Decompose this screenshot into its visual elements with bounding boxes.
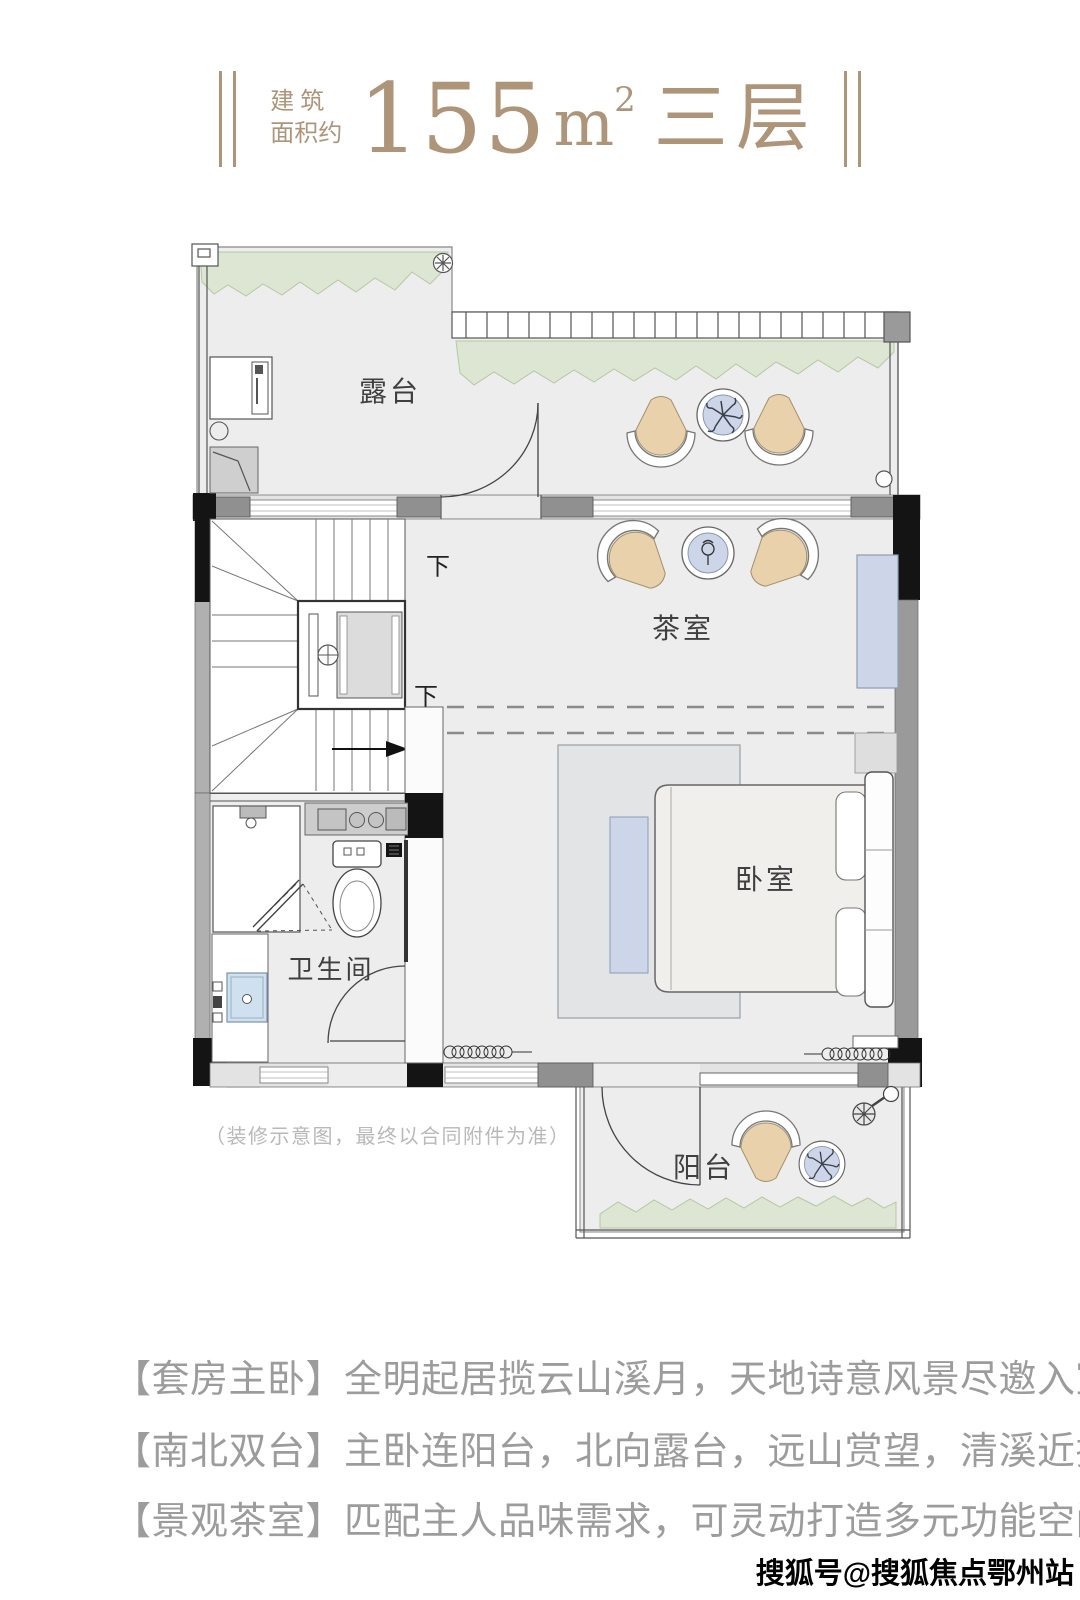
feature-desc: 主卧连阳台，北向露台，远山赏望，清溪近揽 <box>344 1431 1080 1473</box>
disclaimer-note: （装修示意图，最终以合同附件为准） <box>205 1120 571 1149</box>
feature-line-master-suite: 【套房主卧】全明起居揽云山溪月，天地诗意风景尽邀入室 <box>113 1348 1063 1403</box>
feature-tag: 【套房主卧】 <box>113 1359 344 1401</box>
watermark-sohu: 搜狐号@搜狐焦点鄂州站 <box>756 1550 1074 1592</box>
wall-stub <box>855 733 897 773</box>
stairwell <box>210 519 408 801</box>
feature-desc: 全明起居揽云山溪月，天地诗意风景尽邀入室 <box>344 1359 1080 1401</box>
stair-down-label-upper: 下 <box>426 547 450 582</box>
feature-desc: 匹配主人品味需求，可灵动打造多元功能空间 <box>344 1501 1080 1543</box>
feature-tag: 【景观茶室】 <box>113 1501 344 1543</box>
stair-down-label-lower: 下 <box>414 677 438 712</box>
room-label-terrace: 露台 <box>359 370 421 410</box>
room-label-balcony: 阳台 <box>673 1146 735 1186</box>
room-label-tea-room: 茶室 <box>652 607 714 647</box>
room-label-bathroom: 卫生间 <box>287 950 374 987</box>
room-label-bedroom: 卧室 <box>735 858 797 898</box>
feature-line-tea-room: 【景观茶室】匹配主人品味需求，可灵动打造多元功能空间 <box>113 1490 1063 1545</box>
partition-strip <box>404 707 443 1063</box>
feature-tag: 【南北双台】 <box>113 1431 344 1473</box>
wall-bottom-band <box>210 1061 920 1087</box>
feature-line-double-terrace: 【南北双台】主卧连阳台，北向露台，远山赏望，清溪近揽 <box>113 1420 1063 1475</box>
